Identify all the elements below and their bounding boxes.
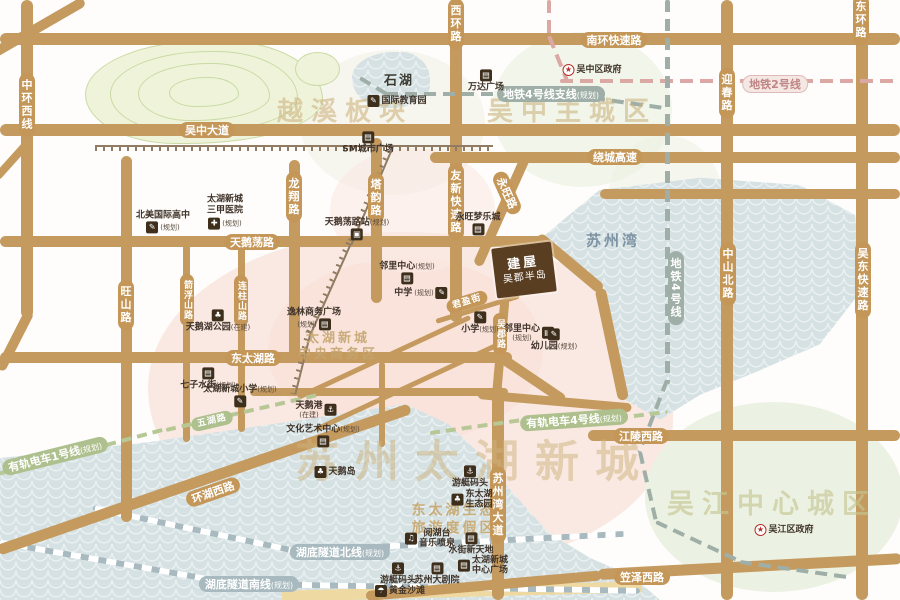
poi-culture-art-center: 文化艺术中心(规划)▤ (286, 424, 359, 447)
train-station-icon: ▣ (351, 229, 363, 241)
road-label-dongtaihu: 东太湖路 (225, 350, 281, 366)
road-label-longxiang: 龙翔路 (286, 172, 302, 223)
road-label-nanhuan: 南环快速路 (581, 32, 648, 48)
poi-label: 黄金沙滩 (389, 586, 425, 596)
road-label-tianedang: 天鹅荡路 (224, 234, 280, 250)
road-label-raocheng: 绕城高速 (587, 149, 643, 165)
watermark-cbd-line2: 中央商务区 (298, 347, 378, 363)
hospital-cross-icon: ✚ (208, 217, 220, 229)
poi-golden-beach: ☂黄金沙滩 (375, 585, 425, 597)
poi-yilin-business-plaza: 逸林商务广场(规划)▤ (287, 307, 341, 330)
tunnel-south-text: 湖底隧道南线 (205, 578, 271, 591)
poi-swan-lake-park: ♣天鹅湖公园(在建) (186, 309, 250, 332)
building-icon: ▤ (472, 224, 484, 236)
poi-label: 太湖新城 (207, 195, 243, 205)
anchor-icon: ⚓ (464, 465, 476, 477)
building-icon: ▤ (431, 562, 443, 574)
road-label-zhonghuan-xixian: 中环西线 (19, 73, 35, 137)
poi-label: 逸林商务广场 (287, 307, 341, 317)
poi-label: 生态园 (465, 500, 492, 510)
poi-suzhou-grand-theater: ▤苏州大剧院 (414, 562, 459, 585)
hill-east (295, 52, 340, 86)
beach-umbrella-icon: ☂ (375, 585, 387, 597)
poi-neighborhood-center-1: 邻里中心(规划)▤ (379, 261, 434, 284)
metro-line4-label: 地铁4号线 (668, 251, 684, 325)
poi-label: 天鹅湖公园 (186, 322, 231, 332)
building-icon: ▤ (317, 436, 329, 448)
building-icon: ▤ (458, 560, 470, 572)
tunnel-north-label: 湖底隧道北线(规划) (290, 544, 390, 560)
road-topleft-diagonal (0, 0, 87, 57)
poi-international-education-park: ✎国际教育园 (367, 95, 426, 107)
poi-label: 太湖新城 (472, 556, 508, 566)
tunnel-south-label: 湖底隧道南线(规划) (199, 576, 299, 592)
tunnel-north-suffix: (规划) (362, 549, 384, 558)
poi-hospital: 太湖新城三甲医院✚(规划) (207, 195, 243, 230)
poi-suffix: (规划) (257, 385, 276, 393)
location-map: 越溪板块 吴中主城区 苏州太湖新城 吴江中心城区 太湖新城 中央商务区 东太湖生… (0, 0, 900, 600)
road-label-xihuan: 西环路 (448, 0, 464, 50)
poi-label: 水街新天地 (448, 545, 493, 555)
metro-line4-track (665, 0, 670, 384)
school-icon: ✎ (367, 95, 379, 107)
poi-label: SM城市广场 (342, 144, 393, 154)
government-star-icon: ★ (562, 64, 574, 76)
road-label-wuzhong-dadao: 吴中大道 (179, 122, 235, 138)
poi-wanda-plaza: ▤万达广场 (468, 69, 504, 92)
school-icon: ✎ (548, 328, 560, 340)
anchor-icon: ⚓ (325, 404, 337, 416)
poi-label: 三甲医院 (207, 206, 243, 216)
music-fountain-icon: ♫ (405, 533, 417, 545)
poi-east-taihu-eco-park: ♣东太湖生态园 (451, 490, 492, 511)
road-label-tayun: 塔韵路 (368, 173, 384, 224)
poi-swan-port: 天鹅港(在建)⚓ (295, 401, 336, 419)
poi-label: 永旺梦乐城 (455, 212, 500, 222)
road-zhonghuan-xixian (21, 0, 33, 318)
poi-aeon-mall: 永旺梦乐城▤ (455, 212, 500, 235)
poi-primary-school-1: ✎小学(规划) (461, 311, 498, 334)
road-label-zhongshanbei: 中山北路 (720, 242, 736, 306)
poi-yacht-dock-2: ⚓游艇码头 (380, 562, 416, 585)
road-label-wudong: 吴东快速路 (855, 242, 871, 319)
poi-label: 天鹅荡路站 (325, 217, 370, 227)
poi-suffix: (规划) (222, 219, 241, 227)
metro-line4-branch-label: 地铁4号线支线(规划) (497, 86, 605, 102)
poi-label: 吴中区政府 (576, 65, 621, 75)
poi-suffix: (规划) (160, 224, 179, 232)
poi-label: 国际教育园 (381, 96, 426, 106)
poi-suffix: (规划) (415, 262, 434, 270)
school-icon: ✎ (146, 222, 158, 234)
school-icon: ✎ (436, 287, 448, 299)
metro-line4-branch-text: 地铁4号线支线 (503, 88, 577, 101)
hill-contour (169, 77, 240, 108)
project-logo-jianwu-wujun-peninsula: 建屋 吴郡半岛 (491, 242, 557, 299)
poi-kindergarten: ✎幼儿园(规划) (531, 328, 577, 351)
poi-label: 太湖新城小学 (203, 384, 257, 394)
poi-label: 东太湖 (465, 490, 492, 500)
poi-north-america-intl-school: 北美国际高中✎(规划) (136, 210, 190, 233)
building-icon: ▤ (319, 319, 331, 331)
poi-wuzhong-government: ★吴中区政府 (562, 64, 621, 76)
poi-middle-school: 中学(规划)✎ (394, 287, 447, 299)
poi-suffix: (在建) (231, 323, 250, 331)
poi-center-plaza: ▤太湖新城中心广场 (458, 556, 508, 577)
road-label-yingchun: 迎春路 (719, 68, 735, 119)
poi-sm-city-plaza: ▤SM城市广场 (342, 131, 393, 154)
poi-label: 中心广场 (472, 566, 508, 576)
railway-line (95, 145, 493, 151)
poi-label: 中学 (394, 288, 412, 298)
poi-swan-island: ♣天鹅岛 (314, 466, 355, 478)
road-wangshan (121, 156, 132, 522)
poi-shuijie-xintiandi: ▤水街新天地 (448, 532, 493, 555)
poi-label: 文化艺术中心 (286, 424, 340, 434)
watermark-cbd-line1: 太湖新城 (298, 331, 378, 347)
poi-label: 吴江区政府 (768, 525, 813, 535)
watermark-cbd: 太湖新城 中央商务区 (298, 331, 378, 364)
road-label-donghuan: 东环路 (853, 0, 869, 46)
metro-line4-branch-suffix: (规划) (577, 91, 599, 100)
school-icon: ✎ (234, 396, 246, 408)
suzhou-bay-label: 苏州湾 (586, 230, 640, 251)
anchor-icon: ⚓ (392, 562, 404, 574)
tree-icon: ♣ (314, 466, 326, 478)
poi-taihu-newtown-primary: 太湖新城小学(规划)✎ (203, 384, 276, 407)
poi-suffix: (规划) (340, 425, 359, 433)
shihu-lake-label: 石湖 (384, 70, 414, 89)
poi-label: 万达广场 (468, 82, 504, 92)
building-icon: ▤ (202, 367, 214, 379)
poi-label: 邻里中心 (379, 261, 415, 271)
poi-suffix: (规划) (297, 321, 316, 329)
school-icon: ✎ (474, 311, 486, 323)
road-cbd-horizontal (250, 388, 508, 396)
poi-suffix: (规划) (479, 325, 498, 333)
poi-label: 天鹅岛 (328, 467, 355, 477)
poi-label: 小学 (461, 324, 479, 334)
poi-label: 幼儿园 (531, 341, 558, 351)
building-icon: ▤ (480, 69, 492, 81)
poi-label: 天鹅港 (295, 401, 322, 411)
poi-suffix: (规划) (558, 342, 577, 350)
taihu-newtown-zone-north (330, 148, 495, 273)
poi-label: 游艇码头 (452, 478, 488, 488)
tunnel-north-text: 湖底隧道北线 (296, 546, 362, 559)
poi-tianedang-station: 天鹅荡路站(规划)▣ (325, 217, 389, 240)
metro-line2-label: 地铁2号线 (742, 75, 808, 93)
road-wuzhong-dadao (0, 124, 900, 136)
government-star-icon: ★ (754, 524, 766, 536)
poi-yacht-dock-1: ⚓游艇码头 (452, 465, 488, 488)
poi-wujiang-government: ★吴江区政府 (754, 524, 813, 536)
poi-suffix: (规划) (414, 289, 433, 297)
building-icon: ▤ (401, 273, 413, 285)
watermark-wujiang: 吴江中心城区 (667, 488, 877, 522)
tree-icon: ♣ (451, 494, 463, 506)
poi-suffix: (在建) (295, 411, 322, 419)
poi-suffix: (规划) (370, 218, 389, 226)
tunnel-south-suffix: (规划) (271, 581, 293, 590)
metro-line2-track (547, 0, 551, 40)
building-icon: ▤ (362, 131, 374, 143)
poi-label: 北美国际高中 (136, 210, 190, 220)
building-icon: ▤ (465, 532, 477, 544)
tram-line4-suffix: (规划) (599, 414, 622, 425)
road-east-horizontal (600, 189, 900, 199)
road-label-lize-xi: 笠泽西路 (614, 569, 670, 585)
road-label-jiangling-xi: 江陵西路 (613, 428, 669, 444)
tree-icon: ♣ (212, 309, 224, 321)
road-label-wangshan: 旺山路 (118, 280, 134, 331)
